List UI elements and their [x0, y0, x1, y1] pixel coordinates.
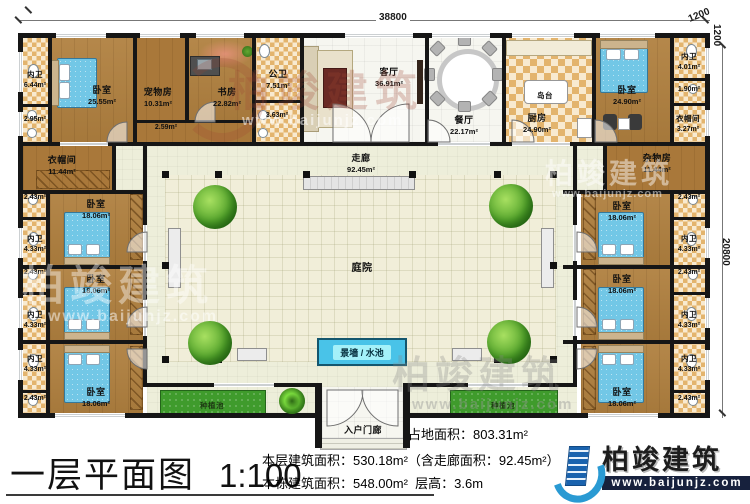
label-bath-363: 3.63m² — [266, 112, 288, 120]
label-bedroom-r1: 卧室18.06m² — [608, 196, 636, 222]
company-logo: 柏竣建筑 www.baijunjz.com — [552, 436, 748, 500]
label-bath-295: 2.95m² — [24, 116, 46, 124]
column — [162, 171, 169, 178]
label-planting-right: 种植池 — [491, 395, 515, 413]
tree — [489, 184, 533, 228]
label-neiwei-r3: 内卫4.33m² — [678, 348, 700, 374]
stat-building-area: 本栋建筑面积：548.00m² 层高：3.6m — [262, 473, 483, 492]
label-neiwei-l3: 内卫4.33m² — [24, 348, 46, 374]
company-logo-icon — [552, 440, 598, 496]
label-kitchen: 厨房24.90m² — [523, 108, 551, 134]
bench — [452, 348, 482, 361]
column — [215, 171, 222, 178]
column — [550, 262, 557, 269]
tree — [193, 185, 237, 229]
label-bath-190: 1.90m² — [678, 86, 700, 94]
bench — [541, 228, 554, 288]
dim-right-height: 20800 — [720, 238, 731, 266]
plan-title-text: 一层平面图 — [10, 456, 195, 495]
label-bath-r3: 2.43m² — [678, 395, 700, 403]
label-planting-left: 种植池 — [200, 395, 224, 413]
label-living: 客厅36.91m² — [375, 62, 403, 88]
column — [494, 171, 501, 178]
label-bedroom-tr: 卧室24.90m² — [613, 80, 641, 106]
label-pet-room: 宠物房10.31m² — [144, 82, 173, 108]
stat-floor-area: 本层建筑面积：530.18m²（含走廊面积：92.45m²） — [262, 450, 560, 469]
label-neiwei-tl: 内卫6.44m² — [24, 64, 46, 90]
tree — [188, 321, 232, 365]
dim-top-width: 38800 — [376, 12, 410, 23]
label-corridor: 走廊92.45m² — [347, 148, 375, 174]
stat-floor-height: 层高：3.6m — [415, 476, 483, 491]
label-bedroom-tl: 卧室25.55m² — [88, 80, 116, 106]
label-bath-l1: 2.43m² — [24, 194, 46, 202]
label-neiwei-tr: 内卫4.01m² — [678, 46, 700, 72]
column — [162, 356, 169, 363]
label-bedroom-l3: 卧室18.06m² — [82, 382, 110, 408]
label-bath-l2: 2.43m² — [24, 269, 46, 277]
plan-title: 一层平面图1:100 — [10, 447, 302, 498]
water-feature: 景墙 / 水池 — [317, 338, 407, 366]
label-neiwei-l1: 内卫4.33m² — [24, 228, 46, 254]
label-bedroom-l1: 卧室18.06m² — [82, 194, 110, 220]
label-pass-259: 2.59m² — [155, 124, 177, 132]
bench — [303, 176, 415, 190]
column — [550, 171, 557, 178]
label-neiwei-r1: 内卫4.33m² — [678, 228, 700, 254]
logo-building-icon — [565, 446, 590, 486]
label-island: 岛台 — [537, 85, 553, 103]
column — [303, 171, 310, 178]
company-name: 柏竣建筑 — [602, 446, 750, 474]
label-study: 书房22.82m² — [213, 82, 241, 108]
column — [550, 356, 557, 363]
label-dining: 餐厅22.17m² — [450, 110, 478, 136]
label-neiwei-l2: 内卫4.33m² — [24, 304, 46, 330]
label-bath-r1: 2.43m² — [678, 194, 700, 202]
label-bedroom-r3: 卧室18.06m² — [608, 382, 636, 408]
bench — [168, 228, 181, 288]
bench — [237, 348, 267, 361]
label-storage: 杂物房11.44m² — [643, 148, 672, 174]
dim-line-right — [722, 45, 723, 418]
water-feature-label: 景墙 / 水池 — [333, 345, 391, 360]
column — [162, 262, 169, 269]
label-cloak-tr: 衣帽间3.27m² — [676, 108, 700, 134]
label-bath-l3: 2.43m² — [24, 395, 46, 403]
label-bedroom-r2: 卧室18.06m² — [608, 269, 636, 295]
dim-line-top — [18, 20, 710, 21]
label-bath-r2: 2.43m² — [678, 269, 700, 277]
company-website: www.baijunjz.com — [602, 476, 750, 490]
stat-land-area: 占地面积：803.31m² — [408, 424, 528, 443]
tree — [487, 320, 531, 364]
palm-tree — [279, 388, 305, 414]
label-entry-porch: 入户门廊 — [344, 420, 382, 438]
title-underline — [6, 494, 434, 496]
label-neiwei-r2: 内卫4.33m² — [678, 304, 700, 330]
column — [409, 171, 416, 178]
label-cloak-left: 衣帽间11.44m² — [48, 150, 77, 176]
floor-plan-canvas: 38800 1200 1200 20800 景墙 / 水池 — [0, 0, 750, 504]
label-gongwei: 公卫7.51m² — [266, 64, 290, 90]
label-bedroom-l2: 卧室18.06m² — [82, 269, 110, 295]
label-courtyard: 庭院 — [352, 258, 373, 276]
